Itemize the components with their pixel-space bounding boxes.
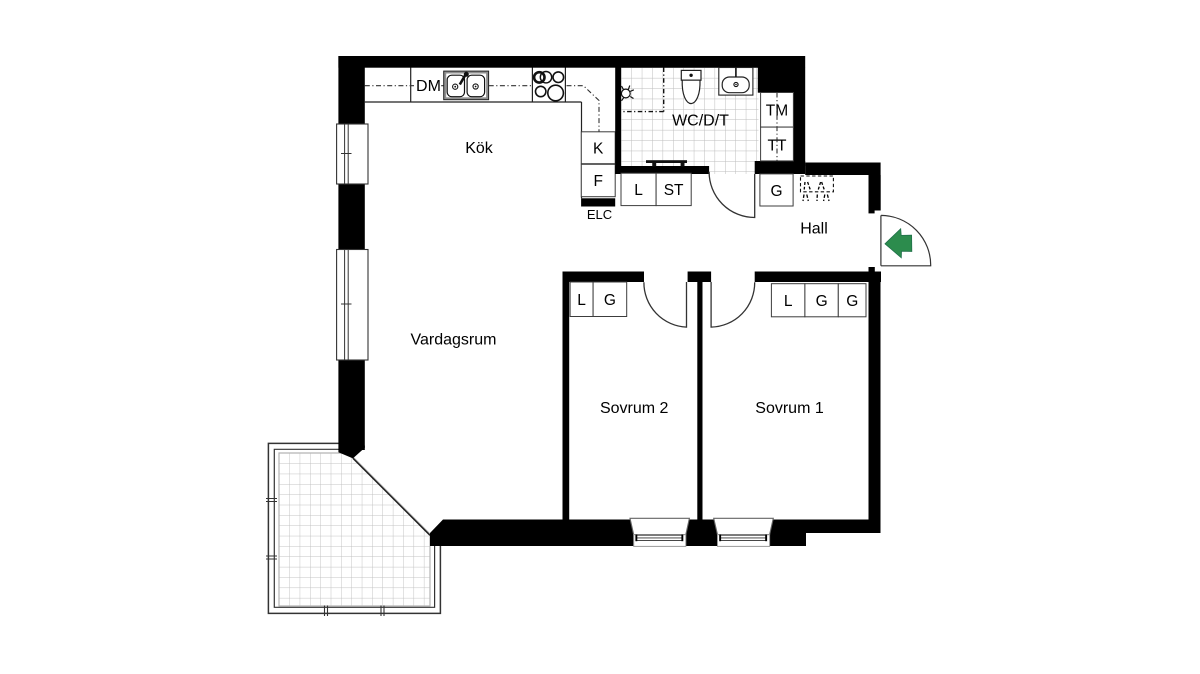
svg-text:DM: DM: [416, 78, 441, 95]
svg-text:K: K: [593, 140, 604, 157]
svg-text:G: G: [816, 293, 828, 310]
svg-text:ELC: ELC: [587, 207, 612, 222]
svg-text:G: G: [770, 183, 782, 200]
svg-text:TT: TT: [768, 137, 787, 154]
svg-text:F: F: [593, 173, 602, 190]
svg-text:Kök: Kök: [465, 140, 494, 157]
svg-text:Vardagsrum: Vardagsrum: [411, 332, 497, 349]
svg-text:G: G: [604, 292, 616, 309]
svg-text:Sovrum 1: Sovrum 1: [755, 400, 824, 417]
svg-text:Sovrum 2: Sovrum 2: [600, 400, 669, 417]
svg-text:TM: TM: [766, 102, 788, 119]
svg-text:Hall: Hall: [800, 221, 828, 238]
svg-text:L: L: [784, 293, 793, 310]
svg-text:L: L: [577, 292, 586, 309]
svg-text:L: L: [634, 182, 643, 199]
svg-text:ST: ST: [664, 182, 684, 199]
svg-text:G: G: [846, 293, 858, 310]
svg-text:WC/D/T: WC/D/T: [672, 113, 729, 130]
